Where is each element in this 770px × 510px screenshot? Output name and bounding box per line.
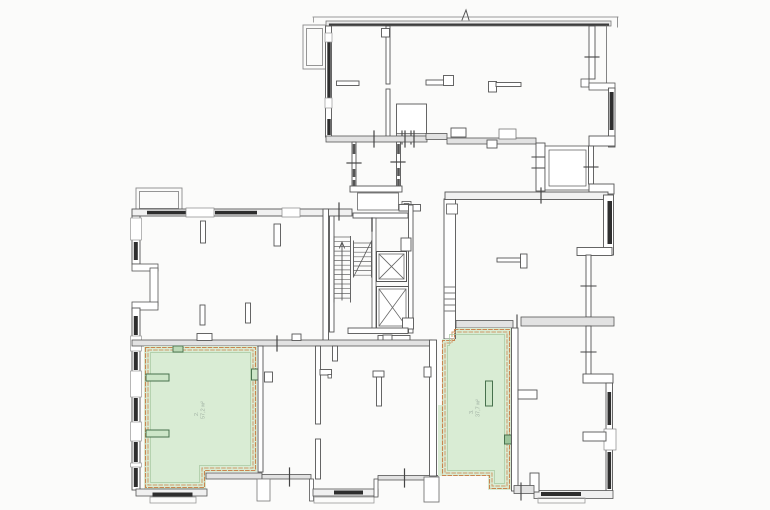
svg-text:57,2 м²: 57,2 м²: [201, 401, 207, 419]
svg-text:2.: 2.: [194, 411, 200, 416]
svg-text:37,7 м²: 37,7 м²: [476, 399, 482, 417]
svg-text:3.: 3.: [469, 409, 475, 414]
